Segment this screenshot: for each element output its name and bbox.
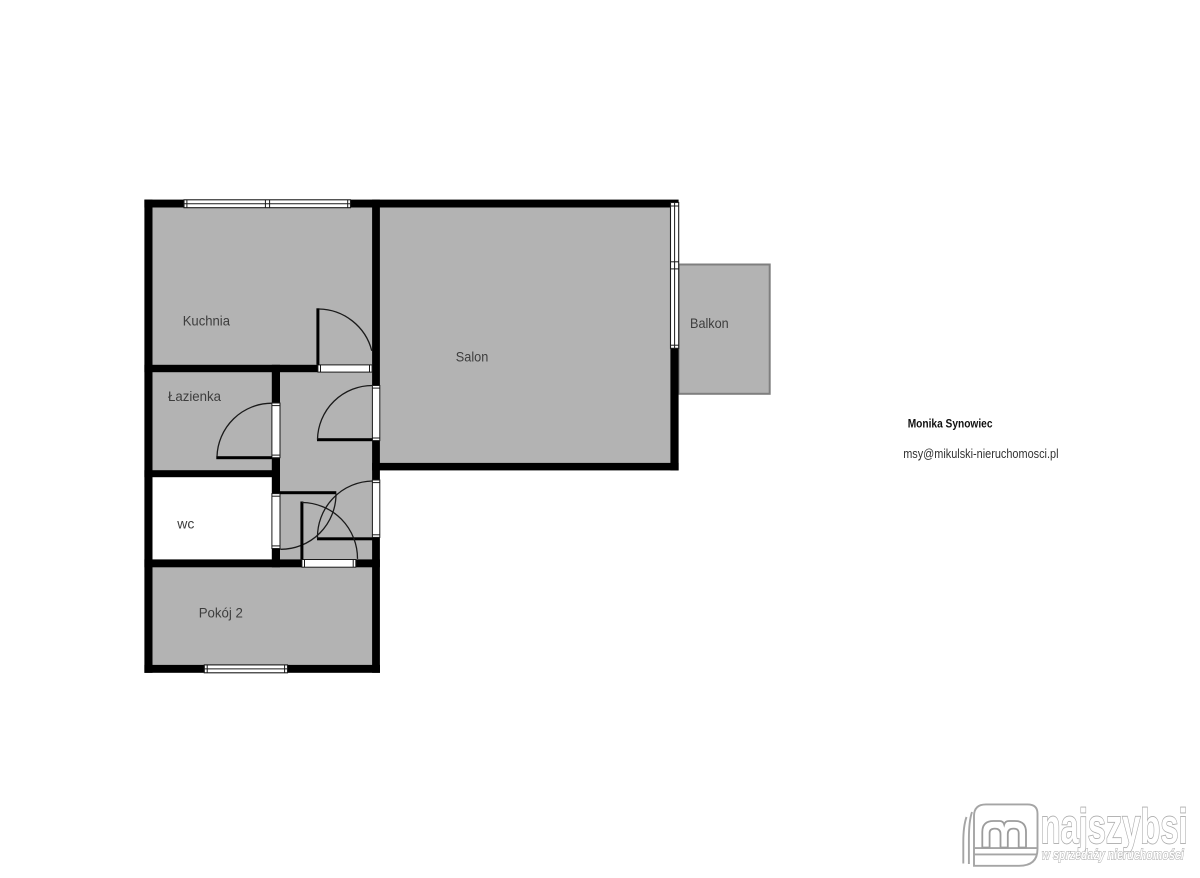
svg-text:Salon: Salon xyxy=(456,348,489,364)
svg-text:Balkon: Balkon xyxy=(690,315,729,331)
svg-text:w sprzedaży nieruchomości: w sprzedaży nieruchomości xyxy=(1042,847,1185,864)
svg-text:Monika Synowiec: Monika Synowiec xyxy=(908,416,993,430)
svg-text:Łazienka: Łazienka xyxy=(168,388,221,404)
svg-text:wc: wc xyxy=(176,516,194,532)
svg-text:msy@mikulski-nieruchomosci.pl: msy@mikulski-nieruchomosci.pl xyxy=(903,446,1058,461)
svg-text:Kuchnia: Kuchnia xyxy=(183,312,230,328)
svg-text:Pokój 2: Pokój 2 xyxy=(199,605,243,621)
